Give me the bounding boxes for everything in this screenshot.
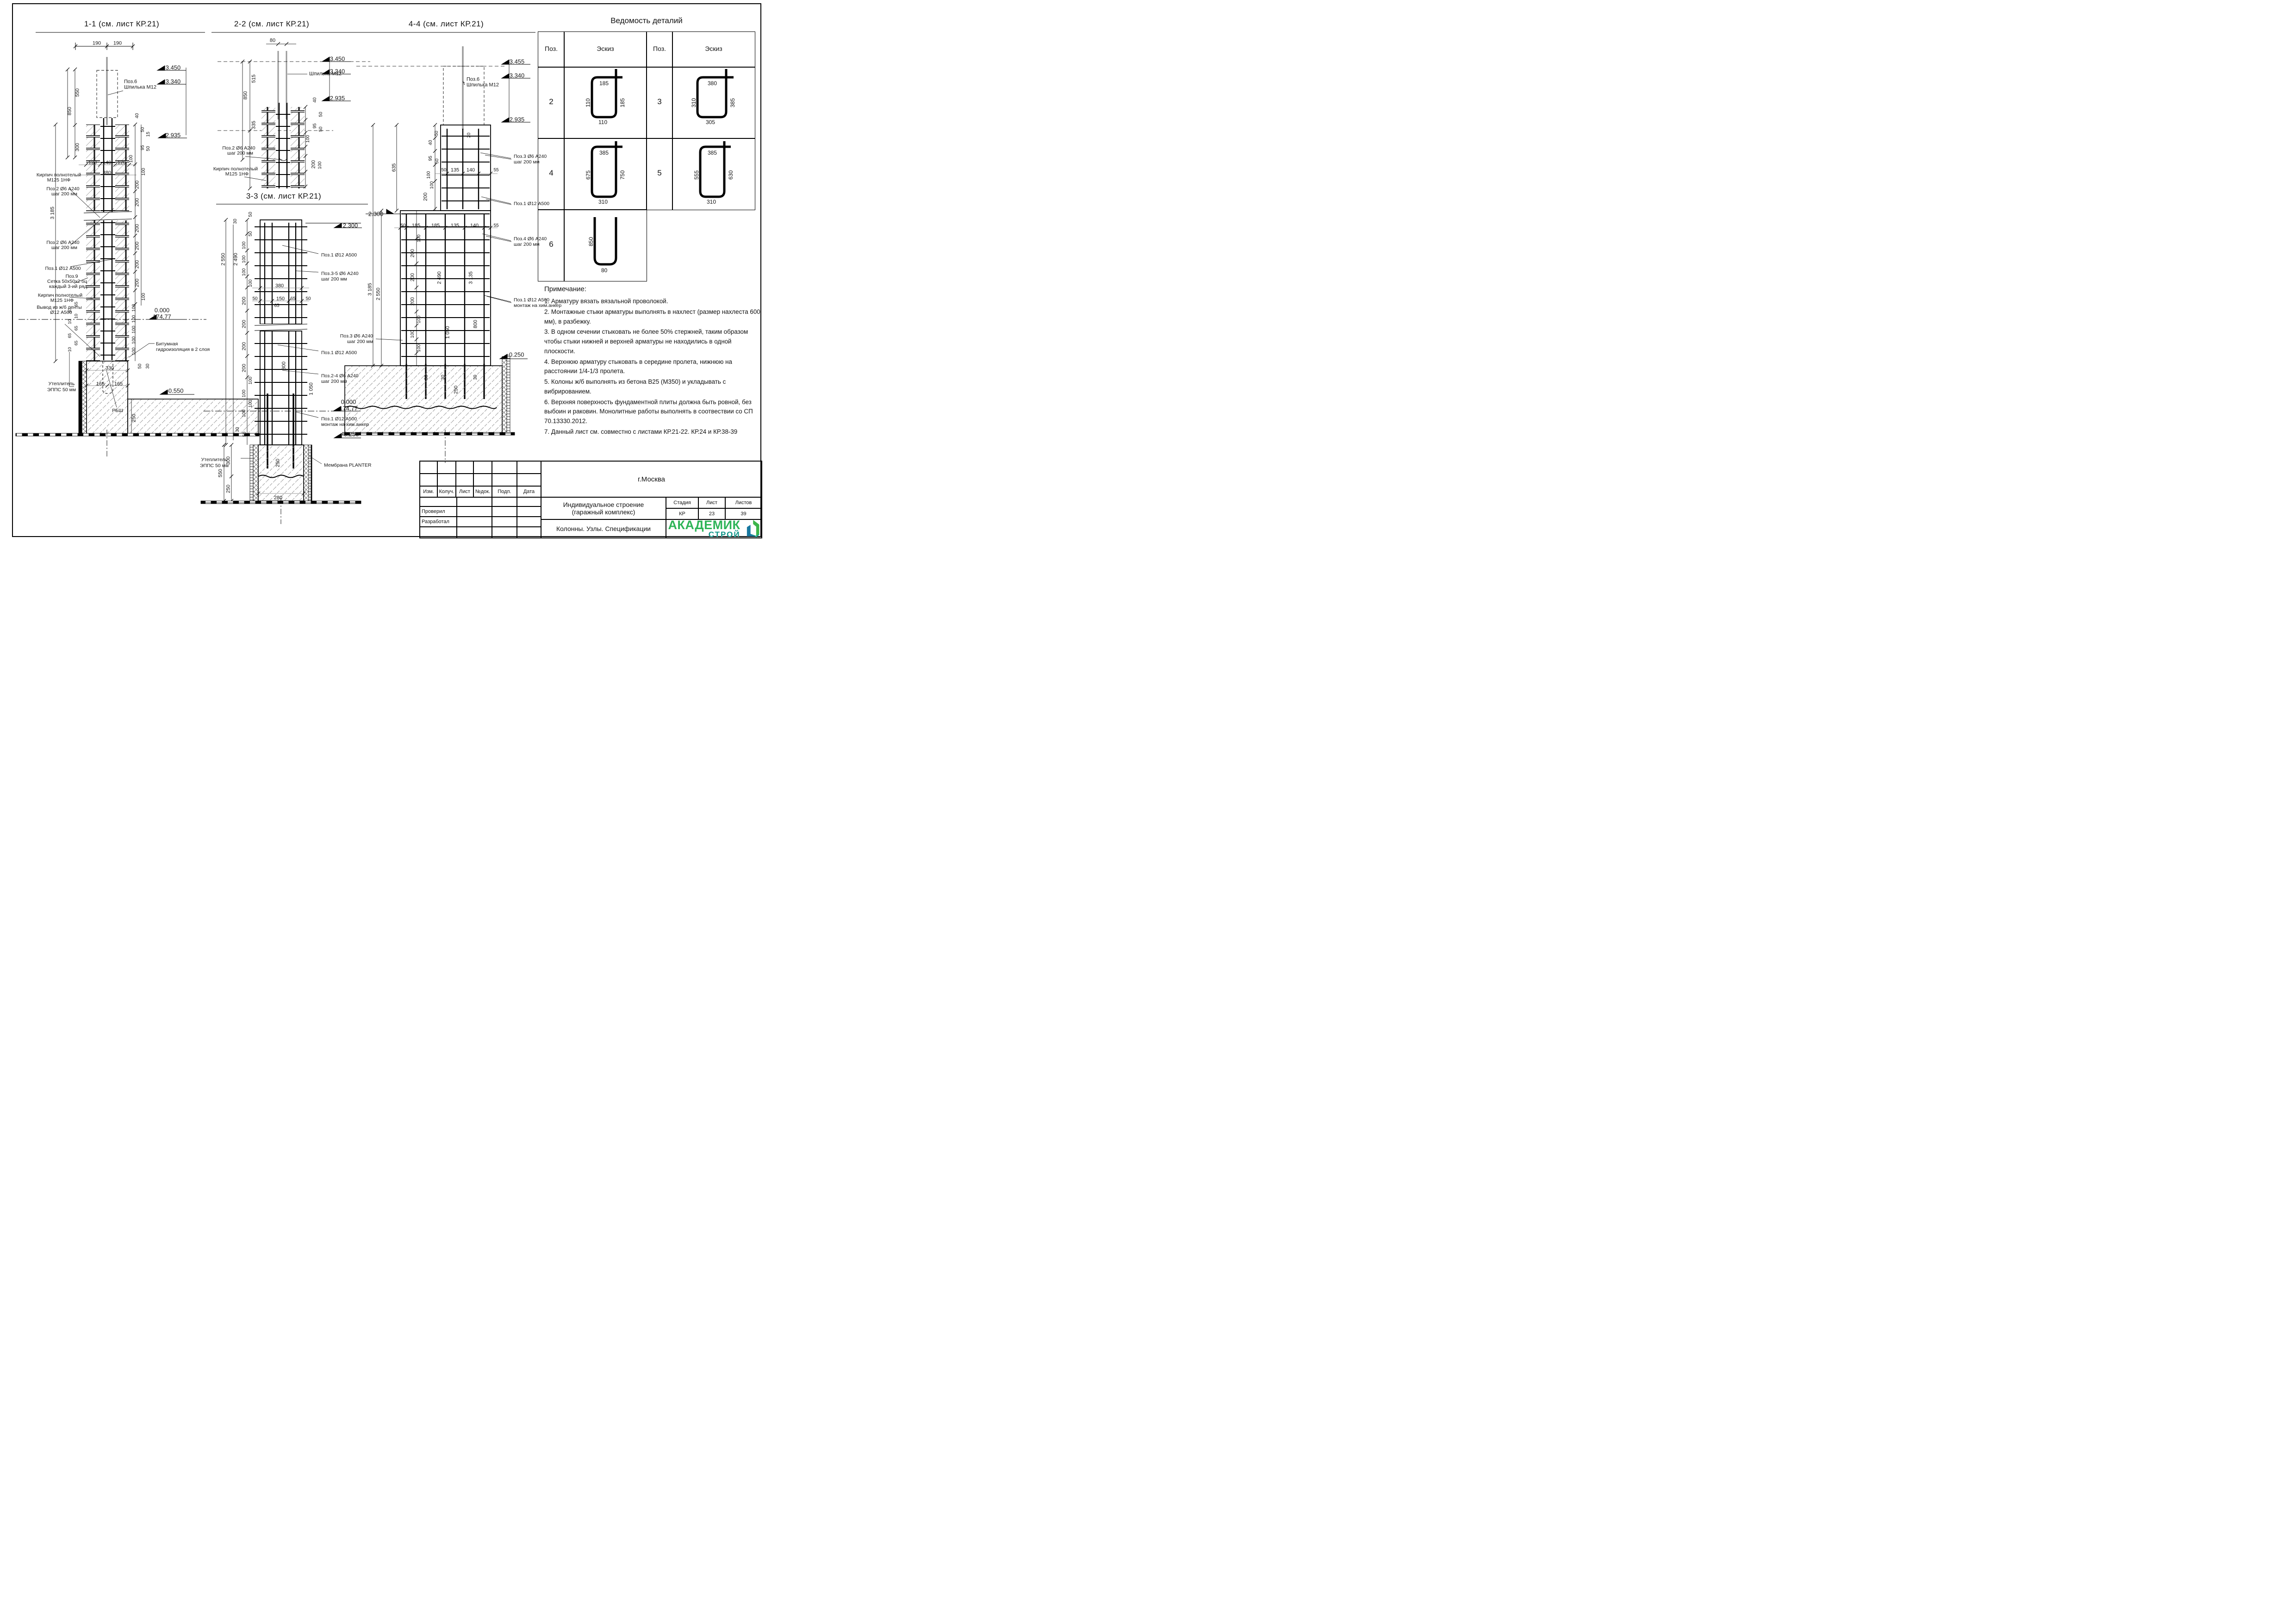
dim-label: Поз.1 Ø12 А500 [321,417,357,422]
dim-label: Поз.2 Ø6 А240 [222,146,255,151]
dim-label: Шпилька М12 [309,72,342,77]
tb-stage-label: Стадия [666,497,699,509]
dim-label: 100 [417,235,422,243]
stirrup-sketch [564,67,647,137]
sketch-dim-bottom: 310 [707,199,716,205]
dim-label: 50 [138,363,143,369]
poz-number: 6 [538,240,564,249]
drawing-sheet: 1-1 (см. лист КР.21) 2-2 (см. лист КР.21… [0,0,765,541]
dim-label: 2.300 [368,211,384,217]
dim-label: ЭППС 50 мм [47,387,76,393]
dim-label: шаг 200 мм [321,379,347,384]
dim-label: 95 [141,145,145,150]
section-title-3-3: 3-3 (см. лист КР.21) [246,192,321,201]
note-item: 7. Данный лист см. совместно с листами К… [544,427,764,437]
tb-col-data: Дата [516,486,541,498]
dim-label: 65 [290,297,295,301]
dim-label: 3.340 [166,79,181,85]
dim-label: 100 [129,155,134,163]
dim-label: 65 [74,326,79,331]
dim-label: Поз.1 Ø12 А500 [45,266,81,271]
dim-label: Битумная [156,342,178,347]
tb-col-ndok: №док. [473,486,492,498]
poz-number: 4 [538,169,564,178]
dim-label: 3 185 [368,283,373,296]
dim-label: 50 [435,158,440,163]
dim-label: шаг 200 мм [514,242,540,247]
dim-label: Поз.1 Ø12 А500 [321,253,357,258]
dim-label: 20 [467,132,472,137]
dim-label: М125 1НФ [225,172,249,177]
dim-label: 65 [74,341,79,346]
dim-label: шаг 200 мм [321,277,347,282]
sketch-dim-left: 675 [585,170,591,180]
note-item: 4. Верхнюю арматуру стыковать в середине… [544,357,764,377]
dim-label: 380 [275,284,284,289]
dim-label: 2.935 [330,95,345,101]
dim-label: 30 [146,363,150,369]
dim-label: 50 [319,126,324,131]
dim-label: 165 [96,382,105,387]
dim-label: 100 [242,256,247,263]
dim-label: 3.455 [510,59,525,65]
section-title-4-4: 4-4 (см. лист КР.21) [409,19,484,29]
note-item: 1. Арматуру вязать вязальной проволокой. [544,297,764,306]
dim-label: 2.935 [510,117,525,123]
section-title-2-2: 2-2 (см. лист КР.21) [234,19,309,29]
notes-block: Примечание: 1. Арматуру вязать вязальной… [544,285,764,438]
dim-label: 140 [103,161,111,166]
dim-label: 0.000 [155,307,170,313]
dim-label: 65 [68,333,72,338]
dim-label: 40 [135,113,140,118]
dim-label: 635 [392,163,397,172]
sketch-dim-bottom: 305 [706,119,715,125]
dim-label: 200 [242,297,247,305]
dim-label: 380 [103,171,111,176]
sketch-dim-left: 310 [691,98,697,107]
dim-label: ЭППС 50 мм [200,463,229,468]
dim-label: 100 [430,181,435,189]
dim-label: 100 [132,315,137,323]
section-title-1-1: 1-1 (см. лист КР.21) [84,19,159,29]
dim-label: 80 [270,38,275,44]
dim-label: -0.550 [167,388,184,394]
dim-label: Мембрана PLANTER [324,463,371,468]
dim-label: 55 [493,224,498,228]
sketch-dim-top: 385 [599,150,609,156]
dim-label: 30 [473,375,478,380]
sketch-cell-poz4: 385 675 750 310 [564,138,647,210]
dim-label: Поз.6 [124,80,137,85]
dim-label: 0.000 [341,399,356,405]
dim-label: 10 [74,314,79,319]
dim-label: 40 [429,140,433,145]
note-item: 2. Монтажные стыки арматуры выполнять в … [544,307,764,327]
dim-label: Поз.2 Ø6 А240 [46,240,79,245]
dim-label: 100 [417,344,422,352]
sketch-cell-poz2: 185 110 185 110 [564,67,647,139]
dim-label: 65 [74,302,79,307]
dim-label: 185 [412,224,420,229]
dim-label: 30 [441,375,446,380]
col-header-poz2: Поз. [647,45,672,52]
dim-label: 135 [451,168,459,173]
note-item: 3. В одном сечении стыковать не более 50… [544,327,764,356]
dim-label: 2 490 [234,253,239,266]
dim-label: 3.450 [330,56,345,62]
dim-label: 1 050 [446,326,451,339]
sketch-dim-right: 185 [619,98,626,107]
dim-label: каждый 3-ий ряд [49,284,87,289]
tb-checked: Проверил [419,506,457,517]
dim-label: 200 [411,273,416,281]
dim-label: 100 [142,168,146,176]
dim-label: шаг 200 мм [227,151,253,156]
dim-label: 200 [135,242,140,250]
dim-label: 120 [118,161,126,166]
dim-label: 50 [146,146,151,151]
dim-label: 50 [400,224,405,228]
tb-col-podp: Подп. [492,486,517,498]
dim-label: шаг 200 мм [347,339,373,344]
sketch-dim-right: 385 [729,98,736,107]
dim-label: 55 [493,168,498,173]
dim-label: 135 [451,224,459,229]
dim-label: 100 [249,377,253,385]
dim-label: 250 [454,386,459,394]
dim-label: 40 [313,97,317,102]
dim-label: 140 [467,168,475,173]
dim-label: 50 [141,127,145,132]
dim-label: 30 [233,219,238,224]
tb-sheets-label: Листов [725,497,762,509]
dim-label: Поз.1 Ø12 А500 [321,350,357,356]
sketch-dim-right: 630 [728,170,734,180]
dim-label: 250 [276,459,281,467]
dim-label: 100 [132,337,137,344]
dim-label: 165 [114,382,123,387]
dim-label: Поз.3-5 Ø6 А240 [321,271,359,276]
dim-label: 95 [429,156,433,161]
dim-label: 50 [305,297,311,301]
tb-project-line2: (гаражный комплекс) [572,508,635,516]
dim-label: 100 [132,348,137,356]
dim-label: 190 [93,41,101,46]
dim-label: Шпилька М12 [124,85,156,90]
dim-label: 800 [473,320,479,328]
dim-label: 850 [243,91,249,100]
logo-house-icon [744,519,760,538]
dim-label: 50 [319,112,324,117]
note-item: 6. Верхняя поверхность фундаментной плит… [544,398,764,426]
dim-label: Кирпич полнотелый [213,167,258,172]
dim-label: 65 [274,304,279,308]
dim-label: 200 [242,342,247,350]
dim-label: 2.935 [166,132,181,138]
dim-label: 10 [68,347,72,352]
tb-sheet-label: Лист [698,497,726,509]
dim-label: 3.450 [166,65,181,71]
sketch-dim-left: 555 [693,170,700,180]
dim-label: 3.340 [510,73,525,79]
tb-col-list: Лист [455,486,474,498]
tb-col-koluch: Колуч. [437,486,456,498]
tb-project-line1: Индивидуальное строение [563,501,644,508]
dim-label: 550 [75,88,81,97]
dim-label: Утеплитель [49,381,75,387]
dim-label: 100 [242,390,247,398]
dim-label: 100 [242,269,247,276]
dim-label: 120 [88,161,97,166]
dim-label: 50 [243,431,247,437]
dim-label: 2 550 [376,287,381,300]
dim-label: 850 [68,107,73,115]
dim-label: 250 [226,485,231,493]
dim-label: 3 135 [469,271,474,284]
dim-label: 200 [411,249,416,257]
dim-label: 15 [146,131,151,137]
dim-label: шаг 200 мм [51,245,77,250]
notes-title: Примечание: [544,285,764,293]
poz-number: 3 [647,97,672,106]
dim-label: 200 [135,181,140,189]
dim-label: 140 [470,224,479,229]
dim-label: 100 [132,326,137,334]
sketch-dim-top: 380 [708,80,717,87]
sketch-dim-left: 110 [585,98,591,107]
dim-label: Кирпич полнотелый [38,293,82,298]
dim-label: 280 [274,496,282,501]
dim-label: 50 [252,297,257,301]
col-header-sketch: Эскиз [564,45,647,52]
dim-label: 100 [306,135,311,143]
dim-label: 200 [411,297,416,306]
sketch-cell-poz5: 385 555 630 310 [672,138,755,210]
sketch-dim-top: 185 [599,80,609,87]
dim-label: М125 1НФ [47,178,71,183]
sketch-dim-top: 385 [708,150,717,156]
dim-label: 200 [423,193,429,201]
dim-label: 200 [135,260,140,269]
dim-label: 100 [427,171,431,179]
sketch-dim-bottom: 110 [598,119,607,125]
note-item: 5. Колоны ж/б выполнять из бетона В25 (М… [544,377,764,397]
sketch-dim-bottom: 310 [598,199,608,205]
dim-label: 100 [318,162,323,169]
dim-label: РБШ [112,408,123,413]
logo-academik: АКАДЕМИК [668,519,740,531]
dim-label: Поз.6 [467,77,479,82]
dim-label: 200 [135,198,140,206]
dim-label: 300 [75,143,81,151]
sketch-dim-right: 750 [619,170,626,180]
dim-label: Утеплитель [201,457,228,462]
dim-label: 335 [252,121,257,129]
dim-label: -0.250 [342,431,359,437]
dim-label: 100 [142,293,146,301]
dim-label: 50 [424,375,429,380]
dim-label: 10 [68,308,72,313]
details-table-title: Ведомость деталий [610,16,683,25]
dim-label: 100 [242,242,247,250]
sketch-cell-poz3: 380 310 385 305 [672,67,755,139]
dim-label: 190 [113,41,122,46]
dim-label: 50 [249,231,253,236]
logo-cell: АКАДЕМИК СТРОЙ [666,519,762,538]
tb-subtitle: Колонны. Узлы. Спецификации [541,519,666,538]
dim-label: 174,77 [153,314,171,320]
dim-label: 100 [417,316,422,324]
dim-label: 3 185 [50,206,56,219]
dim-label: гидроизоляция в 2 слоя [156,347,210,352]
dim-label: Поз.9 [66,274,78,279]
dim-label: 10 [68,319,72,325]
dim-label: 95 [313,123,317,128]
dim-label: Шпилька М12 [467,83,499,88]
dim-label: 2 490 [437,271,442,284]
dim-label: 200 [311,160,317,169]
dim-label: 185 [431,224,440,229]
dim-label: 200 [135,224,140,232]
dim-label: 100 [411,331,415,338]
dim-label: Поз.2 Ø6 А240 [46,187,79,192]
tb-city: г.Москва [541,461,762,498]
dim-label: Сетка 50х50х2 оц [47,279,87,284]
tb-col-izm: Изм. [419,486,438,498]
dim-label: 30 [236,427,240,432]
dim-label: 515 [252,75,257,83]
dim-label: 550 [218,469,224,477]
dim-label: 200 [242,320,247,328]
poz-number: 5 [647,169,672,178]
dim-label: 50 [435,131,439,136]
dim-label: шаг 200 мм [514,160,540,165]
stirrup-sketch [672,67,755,137]
col-header-poz: Поз. [538,45,564,52]
dim-label: -0.250 [507,352,524,358]
dim-label: 2.300 [343,223,358,229]
dim-label: 2 550 [221,253,226,266]
dim-label: 100 [242,410,247,418]
dim-label: Кирпич полнотелый [37,173,81,178]
dim-label: 330 [106,366,114,371]
poz-number: 2 [538,97,564,106]
dim-label: Поз.3 Ø6 А240 [340,334,373,339]
dim-label: шаг 200 мм [51,192,77,197]
dim-label: 1 050 [309,382,314,395]
dim-label: монтаж на хим.анкер [321,422,369,427]
dim-label: 174,77 [339,406,358,412]
dim-label: 50 [441,168,446,173]
sketch-dim-bottom: 80 [601,267,607,274]
col-header-sketch2: Эскиз [672,45,755,52]
tb-developed: Разработал [419,516,457,527]
dim-label: М125 1НФ [50,298,74,303]
dim-label: 250 [132,414,137,422]
dim-label: 50 [249,212,253,217]
dim-label: 800 [282,362,287,370]
dim-label: 100 [249,280,253,287]
sketch-dim-left: 850 [588,237,594,246]
dim-label: 100 [132,304,137,312]
sketch-cell-poz6: 850 80 [564,209,647,281]
dim-label: Поз.2-4 Ø6 А240 [321,374,359,379]
dim-label: 200 [242,364,247,372]
dim-label: 200 [135,279,140,287]
dim-label: 150 [276,297,285,302]
dim-label: 100 [249,400,253,408]
